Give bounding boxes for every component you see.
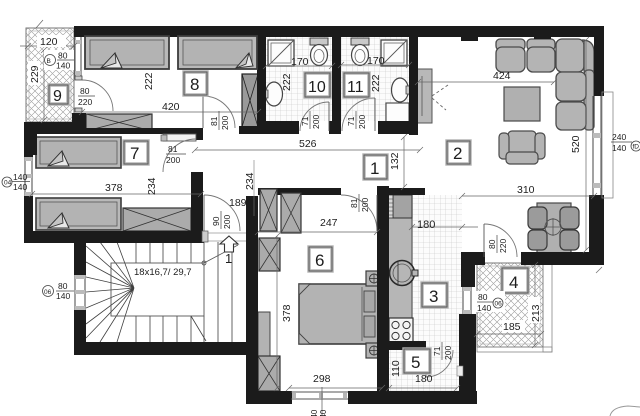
svg-text:200: 200 — [360, 198, 370, 212]
svg-text:110: 110 — [390, 360, 402, 377]
svg-text:247: 247 — [320, 217, 338, 229]
svg-text:4: 4 — [509, 273, 518, 292]
svg-text:8: 8 — [190, 75, 199, 94]
svg-text:B: B — [47, 58, 51, 65]
svg-text:170: 170 — [291, 56, 309, 68]
svg-text:180: 180 — [415, 373, 433, 385]
svg-text:fD: fD — [633, 144, 640, 151]
svg-text:140: 140 — [56, 61, 70, 71]
svg-text:220: 220 — [78, 97, 92, 107]
svg-text:6: 6 — [315, 251, 324, 270]
svg-text:180: 180 — [417, 219, 435, 231]
svg-text:7: 7 — [130, 144, 139, 163]
svg-text:140: 140 — [13, 172, 27, 182]
svg-text:234: 234 — [146, 177, 158, 195]
svg-text:298: 298 — [313, 373, 331, 385]
svg-text:140: 140 — [477, 303, 491, 313]
svg-text:80: 80 — [80, 86, 90, 96]
svg-text:18x16,7/ 29,7: 18x16,7/ 29,7 — [134, 267, 192, 278]
svg-text:378: 378 — [105, 182, 123, 194]
svg-text:213: 213 — [530, 304, 542, 322]
svg-text:90: 90 — [211, 216, 221, 226]
svg-text:189: 189 — [229, 197, 247, 209]
svg-text:200: 200 — [311, 115, 321, 129]
svg-text:520: 520 — [570, 135, 582, 153]
svg-text:1: 1 — [225, 251, 232, 266]
svg-text:378: 378 — [281, 304, 293, 322]
svg-text:170: 170 — [367, 55, 385, 67]
svg-text:220: 220 — [498, 239, 508, 253]
svg-text:06: 06 — [495, 301, 503, 308]
svg-text:222: 222 — [281, 73, 293, 91]
svg-text:71: 71 — [346, 116, 356, 126]
svg-text:229: 229 — [29, 65, 41, 83]
svg-text:71: 71 — [300, 116, 310, 126]
svg-text:71: 71 — [432, 346, 442, 356]
svg-text:04: 04 — [4, 180, 12, 187]
svg-text:200: 200 — [220, 116, 230, 130]
svg-text:200: 200 — [222, 215, 232, 229]
svg-text:132: 132 — [389, 152, 401, 170]
svg-text:80: 80 — [58, 281, 68, 291]
svg-text:310: 310 — [517, 184, 535, 196]
svg-text:200: 200 — [443, 346, 453, 360]
svg-text:200: 200 — [357, 115, 367, 129]
svg-text:81: 81 — [168, 144, 178, 154]
svg-text:80: 80 — [58, 51, 68, 61]
svg-text:140: 140 — [310, 409, 319, 416]
svg-text:140: 140 — [56, 291, 70, 301]
svg-text:424: 424 — [493, 70, 511, 82]
svg-text:11: 11 — [347, 79, 364, 96]
svg-text:140: 140 — [13, 182, 27, 192]
svg-text:2: 2 — [453, 144, 462, 163]
svg-text:140: 140 — [612, 143, 626, 153]
svg-text:80: 80 — [487, 239, 497, 249]
svg-text:222: 222 — [143, 72, 155, 90]
svg-text:185: 185 — [503, 321, 521, 333]
svg-text:222: 222 — [370, 74, 382, 92]
svg-text:81: 81 — [209, 116, 219, 126]
svg-text:10: 10 — [308, 79, 326, 96]
svg-text:526: 526 — [299, 138, 317, 150]
svg-text:1: 1 — [370, 159, 379, 178]
svg-text:140: 140 — [319, 409, 328, 416]
svg-text:420: 420 — [162, 101, 180, 113]
svg-text:80: 80 — [478, 292, 488, 302]
svg-text:120: 120 — [40, 36, 58, 48]
svg-text:9: 9 — [53, 88, 62, 105]
svg-text:200: 200 — [166, 155, 180, 165]
svg-text:5: 5 — [411, 353, 420, 372]
svg-text:06: 06 — [44, 289, 52, 296]
svg-text:81: 81 — [349, 198, 359, 208]
svg-text:3: 3 — [429, 287, 438, 306]
svg-text:240: 240 — [612, 132, 626, 142]
